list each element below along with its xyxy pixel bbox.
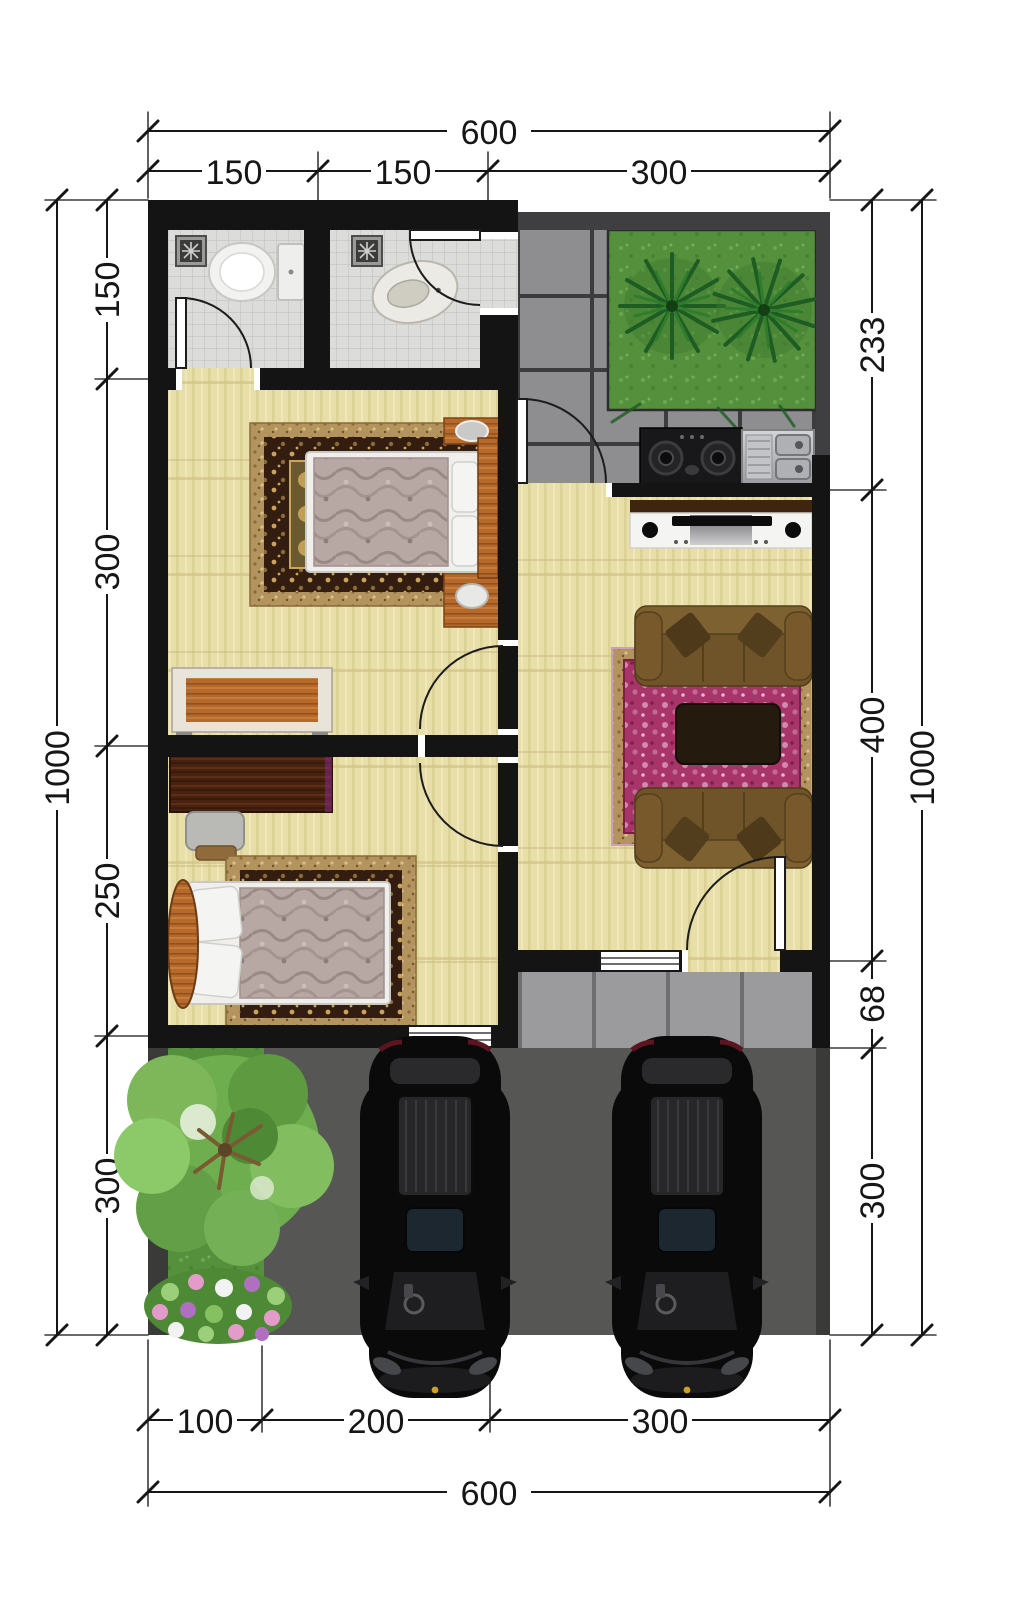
car-right <box>605 1036 769 1398</box>
dim-label-top-total: 600 <box>461 114 518 152</box>
dim-top-segments: 150 150 300 <box>138 152 840 192</box>
dim-right-segments: 233 400 68 300 <box>853 190 892 1345</box>
dim-bottom-total: 600 <box>138 1473 840 1513</box>
dim-label-top-3: 300 <box>631 154 688 192</box>
floor-plan-drawing: 600 150 150 300 1000 150 300 250 300 <box>0 0 1024 1621</box>
gas-stove <box>640 428 742 484</box>
dim-label-top-1: 150 <box>206 154 263 192</box>
dim-right-total: 1000 <box>903 190 942 1345</box>
dim-top-total: 600 <box>138 112 840 152</box>
bed-1-headboard <box>478 438 498 578</box>
wall-kitchen <box>612 483 812 497</box>
dim-label-left-3: 250 <box>89 863 127 920</box>
dim-left-total: 1000 <box>38 190 77 1345</box>
dim-label-bottom-total: 600 <box>461 1475 518 1513</box>
dim-label-left-1: 150 <box>89 262 127 319</box>
dim-label-right-2: 400 <box>854 697 892 754</box>
flower-bed <box>144 1268 292 1344</box>
dim-bottom-segments: 100 200 300 <box>138 1401 840 1441</box>
tv-icon <box>672 516 772 526</box>
dim-label-right-total: 1000 <box>904 730 942 806</box>
wall-top <box>148 200 518 230</box>
dim-label-right-1: 233 <box>854 317 892 374</box>
dim-label-right-4: 300 <box>854 1163 892 1220</box>
floor-drain-icon <box>176 236 206 266</box>
pillow <box>452 516 478 566</box>
wall-center-vertical <box>498 390 518 972</box>
wall-bedroom-divider <box>148 735 498 757</box>
tv-cabinet <box>630 500 812 548</box>
lamp-icon <box>456 584 488 608</box>
car-left <box>353 1036 517 1398</box>
floor-plan-page: 600 150 150 300 1000 150 300 250 300 <box>0 0 1024 1621</box>
wall-left <box>148 230 168 1048</box>
bench <box>172 668 332 740</box>
sofa-top <box>635 606 812 686</box>
dim-label-bottom-2: 200 <box>348 1403 405 1441</box>
dim-label-right-3: 68 <box>854 985 892 1023</box>
kitchen-sink <box>742 430 814 484</box>
bed-2-headboard <box>168 880 198 1008</box>
floor-drain-icon <box>352 236 382 266</box>
toilet-icon <box>209 243 304 301</box>
window-living-room <box>600 951 680 971</box>
wall-bathroom-divider <box>304 230 330 368</box>
dim-label-left-2: 300 <box>89 534 127 591</box>
pillow <box>452 462 478 512</box>
bed-2-mattress <box>240 888 384 998</box>
bed-2 <box>168 880 390 1008</box>
dim-label-top-2: 150 <box>375 154 432 192</box>
dim-label-bottom-1: 100 <box>177 1403 234 1441</box>
dim-label-bottom-3: 300 <box>632 1403 689 1441</box>
bed-1 <box>306 438 498 578</box>
wall-right <box>812 455 830 972</box>
kitchen-counter <box>640 428 814 484</box>
dim-label-left-total: 1000 <box>39 730 77 806</box>
bed-1-mattress <box>314 458 448 566</box>
back-garden <box>608 230 830 430</box>
coffee-table <box>676 704 780 764</box>
